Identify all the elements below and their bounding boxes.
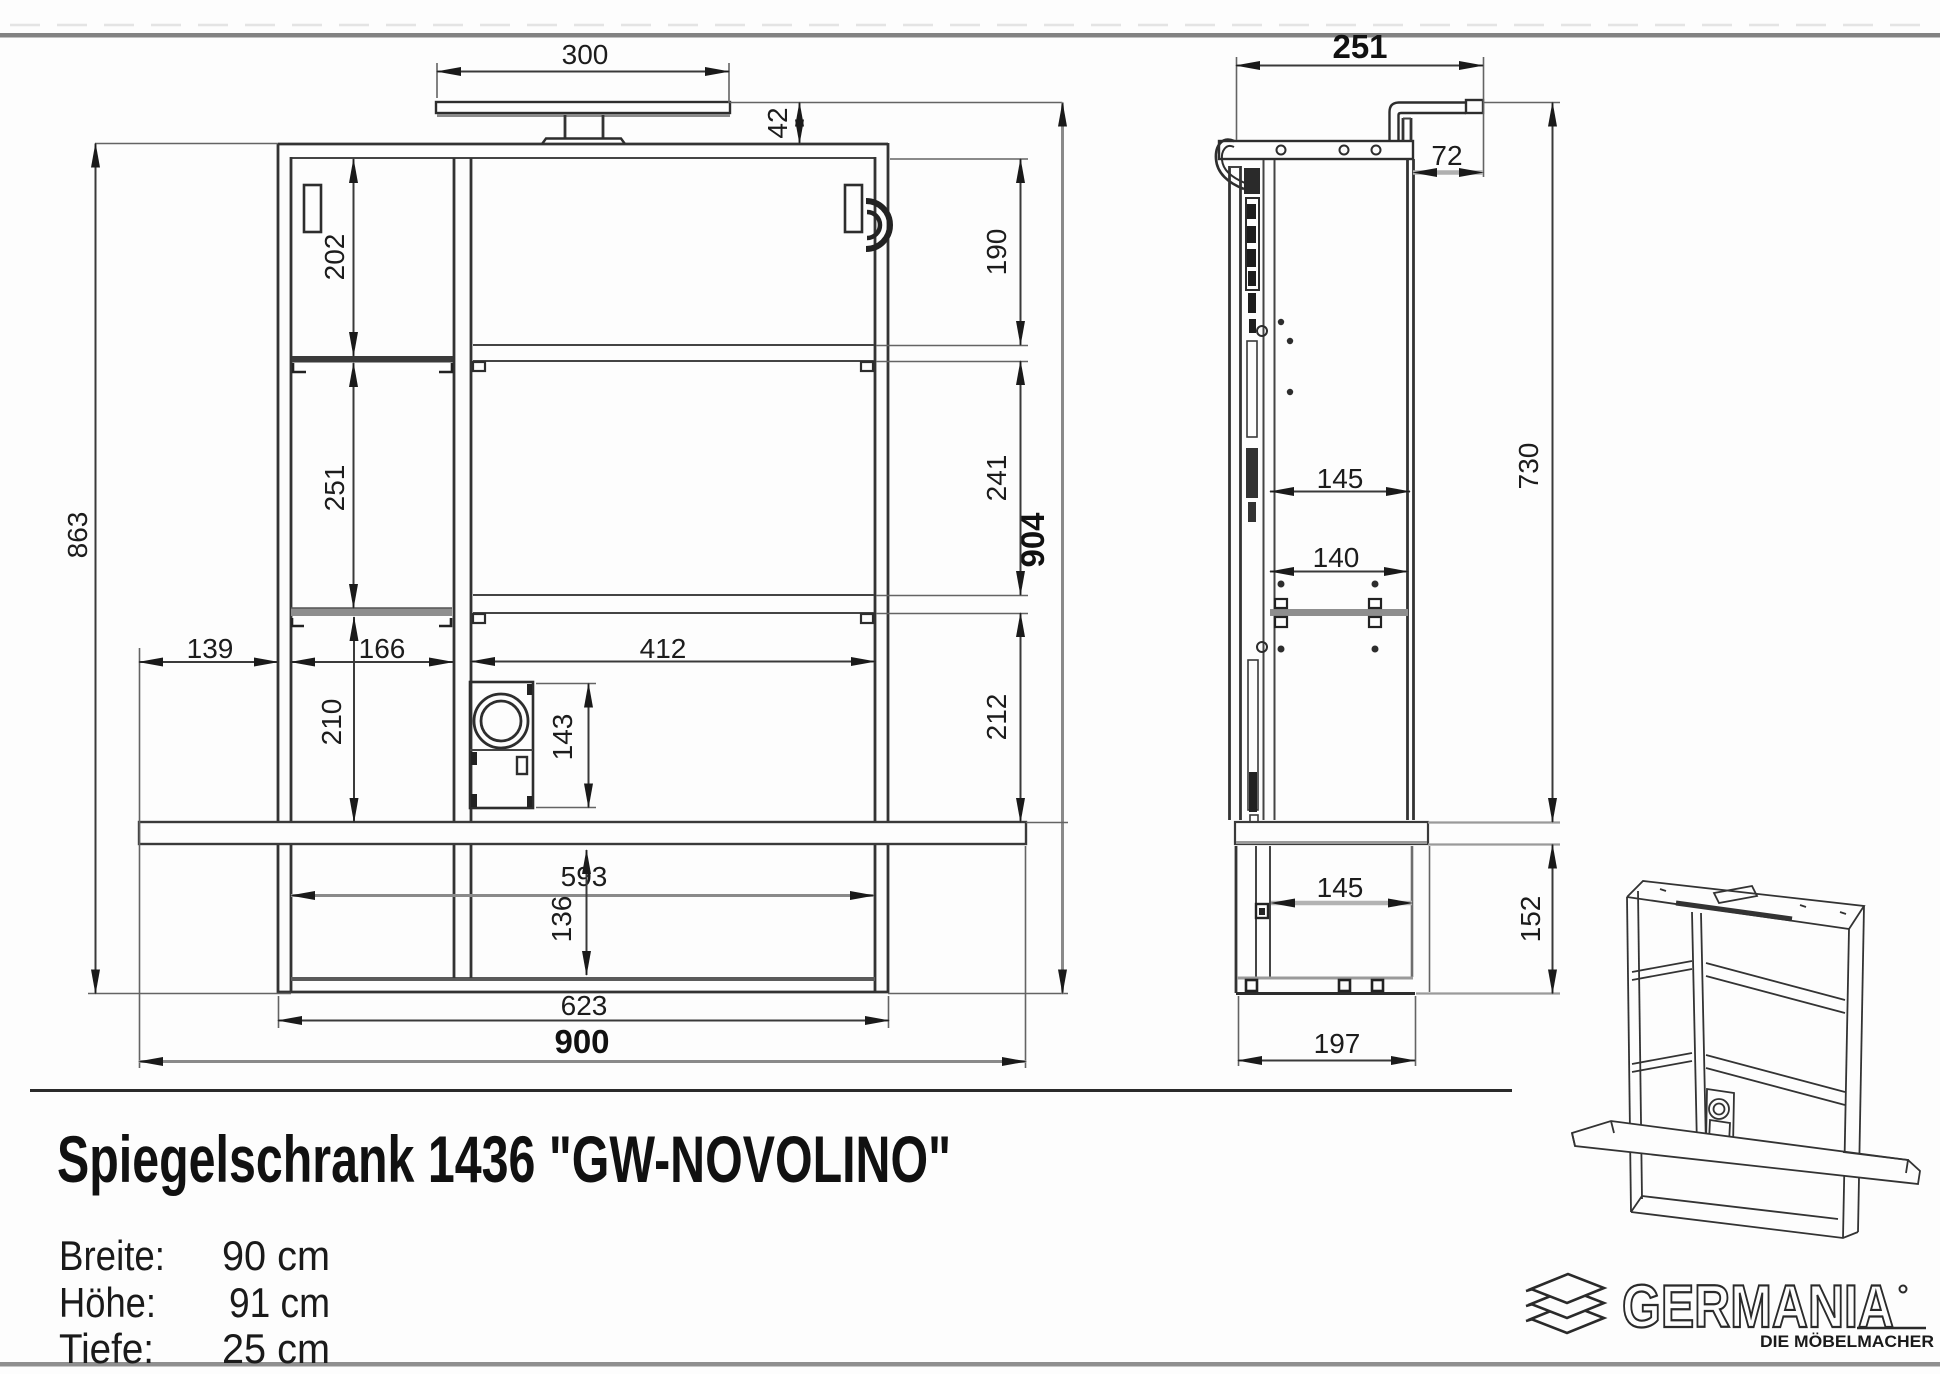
svg-text:190: 190 <box>981 229 1012 276</box>
svg-text:140: 140 <box>1313 542 1360 573</box>
svg-text:152: 152 <box>1515 896 1546 943</box>
svg-text:Breite:: Breite: <box>59 1232 165 1279</box>
svg-text:72: 72 <box>1431 140 1462 171</box>
svg-text:251: 251 <box>1332 28 1387 65</box>
svg-text:DIE MÖBELMACHER: DIE MÖBELMACHER <box>1760 1332 1934 1351</box>
svg-text:145: 145 <box>1317 872 1364 903</box>
svg-text:900: 900 <box>554 1023 609 1060</box>
svg-text:412: 412 <box>640 633 687 664</box>
svg-text:241: 241 <box>981 455 1012 502</box>
svg-text:Spiegelschrank 1436 "GW-NOVOLI: Spiegelschrank 1436 "GW-NOVOLINO" <box>57 1122 951 1196</box>
svg-text:210: 210 <box>316 699 347 746</box>
svg-text:GERMANIA: GERMANIA <box>1622 1273 1894 1340</box>
svg-text:42: 42 <box>762 107 793 138</box>
svg-text:139: 139 <box>187 633 234 664</box>
svg-text:91 cm: 91 cm <box>229 1279 330 1326</box>
svg-text:212: 212 <box>981 694 1012 741</box>
svg-text:25 cm: 25 cm <box>222 1325 330 1372</box>
svg-text:251: 251 <box>319 465 350 512</box>
svg-text:136: 136 <box>546 896 577 943</box>
svg-text:623: 623 <box>561 990 608 1021</box>
svg-text:Tiefe:: Tiefe: <box>59 1325 154 1372</box>
svg-text:90 cm: 90 cm <box>222 1232 330 1279</box>
svg-text:593: 593 <box>561 861 608 892</box>
svg-text:145: 145 <box>1317 463 1364 494</box>
svg-text:197: 197 <box>1314 1028 1361 1059</box>
svg-text:202: 202 <box>319 234 350 281</box>
svg-text:166: 166 <box>359 633 406 664</box>
svg-text:Höhe:: Höhe: <box>59 1279 156 1326</box>
svg-text:730: 730 <box>1513 443 1544 490</box>
svg-text:300: 300 <box>562 39 609 70</box>
svg-text:143: 143 <box>547 714 578 761</box>
svg-text:863: 863 <box>62 512 93 559</box>
